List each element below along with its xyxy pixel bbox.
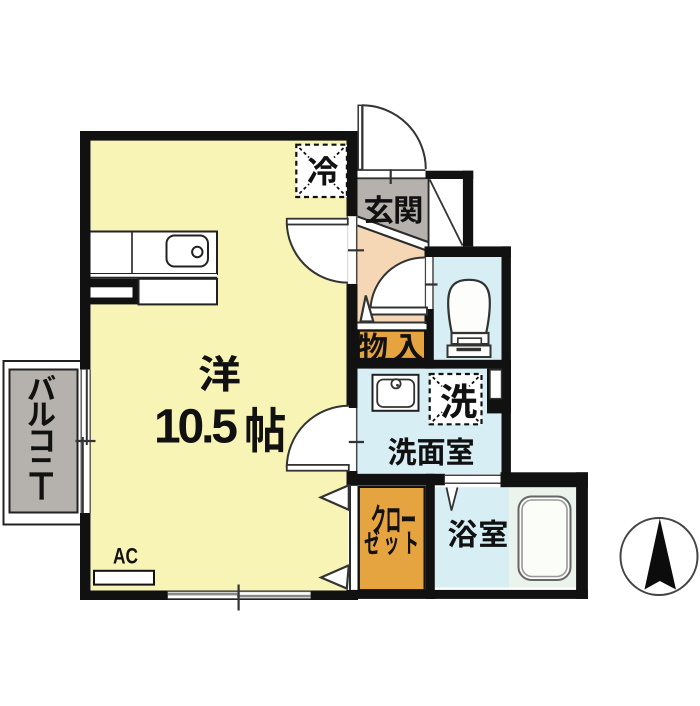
svg-text:10.5: 10.5 bbox=[154, 401, 238, 454]
svg-text:AC: AC bbox=[113, 544, 138, 569]
